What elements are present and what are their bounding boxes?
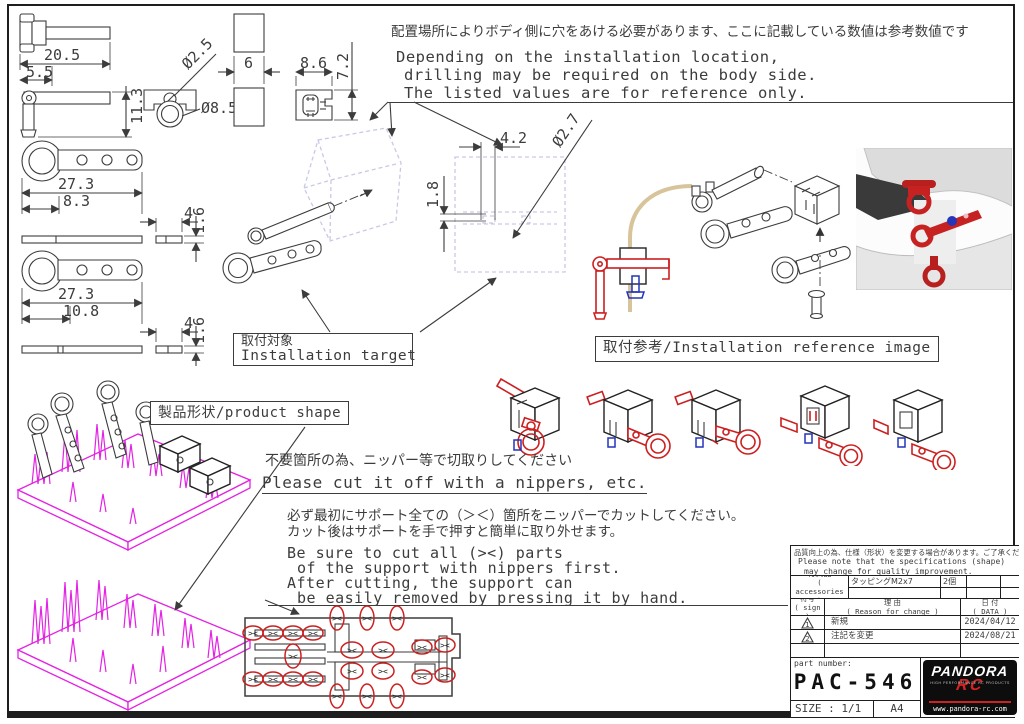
dim-dia-2-7: Ø2.7 [548, 110, 583, 150]
rev3-date [961, 644, 1019, 658]
dim-7-2: 7.2 [334, 53, 352, 80]
paper-size: A4 [874, 701, 921, 717]
cut-markers [243, 606, 455, 708]
svg-text:2: 2 [805, 635, 809, 643]
svg-text:><: >< [440, 671, 450, 680]
plate-a-end-view [156, 236, 182, 243]
col-date: 日 付 ( DATA ) [961, 599, 1019, 616]
rev1-sign: 1 [791, 616, 825, 630]
size-label: SIZE : 1/1 [791, 701, 874, 717]
col-reason-jp: 理 由 [884, 599, 901, 607]
product-shape-label: 製品形状/product shape [150, 401, 349, 425]
col-reason: 理 由 ( Reason for change ) [825, 599, 961, 616]
part-number-value: PAC-546 [791, 670, 920, 694]
installation-target-label-en: Installation target [241, 349, 405, 364]
rev2-sign: 2 [791, 630, 825, 644]
col-date-jp: 日 付 [982, 599, 999, 607]
reference-photo [856, 148, 1012, 290]
assembly-step-4 [775, 378, 870, 466]
tb-note-en-2: may change for quality improvement. [794, 567, 1016, 577]
svg-text:><: >< [417, 643, 427, 652]
svg-text:><: >< [268, 629, 278, 638]
top-note-jp: 配置場所によりボディ側に穴をあける必要があります、ここに記載している数値は参考数… [391, 20, 969, 40]
svg-text:><: >< [392, 692, 402, 701]
title-block: 品質向上の為、仕様（形状）を変更する場合があります。ご了承ください。 Pleas… [790, 545, 1019, 717]
col-date-en: ( DATA ) [972, 607, 1007, 616]
svg-text:><: >< [440, 641, 450, 650]
pandora-rc-logo: PANDORA RC HIGH PERFORMANCE RC PRODUCTS … [923, 660, 1017, 715]
dim-1-8: 1.8 [424, 181, 442, 208]
dim-8-3: 8.3 [63, 192, 90, 210]
dim-6: 6 [244, 54, 253, 72]
svg-text:><: >< [332, 614, 342, 623]
logo-red-line [929, 701, 1011, 703]
svg-text:><: >< [392, 614, 402, 623]
dim-5-5: 5.5 [26, 63, 53, 81]
installation-reference-label-text: 取付参考/Installation reference image [603, 341, 931, 356]
rev1-date: 2024/04/12 [961, 616, 1019, 630]
accessories-label-en: ( accessories ) [791, 578, 848, 599]
product-shape-label-text: 製品形状/product shape [158, 406, 341, 421]
revision-triangle-1: 1 [801, 617, 814, 629]
cut-note-en: Please cut it off with a nippers, etc. [262, 473, 647, 494]
installation-reference-label: 取付参考/Installation reference image [595, 336, 939, 362]
exploded-reference-parts [692, 165, 850, 319]
assembly-step-5 [868, 382, 963, 470]
plate-a-side-view [22, 236, 142, 243]
top-note-en-2: drilling may be required on the body sid… [404, 66, 817, 84]
dim-27-3-a: 27.3 [58, 175, 94, 193]
print-raft-empty [18, 580, 250, 710]
plate-b-end-view [156, 346, 182, 353]
rev3-reason [825, 644, 961, 658]
svg-text:><: >< [308, 629, 318, 638]
dim-11-3: 11.3 [128, 88, 146, 124]
col-sign: 符号 ( sign ) [791, 599, 825, 616]
part-number-label: part number: [791, 658, 920, 668]
svg-text:><: >< [347, 667, 357, 676]
assembly-step-2 [580, 380, 675, 468]
installation-target-label: 取付対象 Installation target [233, 333, 413, 366]
svg-text:><: >< [288, 629, 298, 638]
cut-note-jp: 不要箇所の為、ニッパー等で切取りしてください [265, 450, 572, 470]
shackle-front-view [144, 90, 196, 127]
dim-10-8: 10.8 [63, 302, 99, 320]
installation-reference-illustration [580, 128, 858, 333]
rev3-sign [791, 644, 825, 658]
svg-text:><: >< [362, 614, 372, 623]
svg-text:><: >< [288, 652, 298, 661]
svg-text:><: >< [417, 673, 427, 682]
accessory-row2-extra2 [1001, 588, 1019, 599]
rev2-date: 2024/08/21 [961, 630, 1019, 644]
accessory-qty: 2個 [941, 576, 967, 588]
accessory-extra-1 [967, 576, 1001, 588]
installation-target-label-jp: 取付対象 [241, 335, 405, 349]
tb-note-en-1: Please note that the specifications (sha… [794, 557, 1016, 567]
assembly-step-3 [668, 380, 763, 468]
accessories-header: 付属品 ( accessories ) [791, 576, 849, 599]
block-top-view [234, 14, 264, 52]
logo-url: www.pandora-rc.com [923, 705, 1017, 713]
accessory-row2-extra1 [967, 588, 1001, 599]
svg-text:><: >< [378, 667, 388, 676]
accessory-extra-2 [1001, 576, 1019, 588]
svg-text:><: >< [362, 692, 372, 701]
accessory-name: タッピングM2x7 [849, 576, 941, 588]
drawing-sheet: 配置場所によりボディ側に穴をあける必要があります、ここに記載している数値は参考数… [0, 0, 1024, 724]
dim-4-2: 4.2 [500, 129, 527, 147]
svg-text:><: >< [378, 646, 388, 655]
sprue-cut-points-drawing: ><><>< ><><>< ><><><>< ><><><>< >< ><>< … [237, 598, 472, 720]
title-block-note: 品質向上の為、仕様（形状）を変更する場合があります。ご了承ください。 Pleas… [791, 546, 1019, 576]
cut-detail-jp-2: カット後はサポートを手で押すと簡単に取り外せます。 [287, 520, 623, 540]
top-note-en-1: Depending on the installation location, [396, 48, 779, 66]
ghost-body-panel-3d [304, 128, 401, 241]
svg-text:><: >< [347, 646, 357, 655]
dim-27-3-b: 27.3 [58, 285, 94, 303]
dim-20-5: 20.5 [44, 46, 80, 64]
rev2-reason: 注記を変更 [825, 630, 961, 644]
tb-note-jp: 品質向上の為、仕様（形状）を変更する場合があります。ご了承ください。 [794, 548, 1016, 557]
svg-text:><: >< [288, 675, 298, 684]
exploded-pin-plate [223, 190, 372, 283]
plate-b-side-view [22, 346, 142, 353]
accessory-row2-name [849, 588, 941, 599]
pin-side-view [21, 91, 110, 137]
svg-text:><: >< [248, 629, 258, 638]
svg-text:><: >< [268, 675, 278, 684]
rev1-reason: 新規 [825, 616, 961, 630]
svg-text:><: >< [332, 692, 342, 701]
dim-8-6: 8.6 [300, 54, 327, 72]
col-reason-en: ( Reason for change ) [846, 607, 938, 616]
svg-text:1: 1 [805, 621, 809, 629]
svg-text:><: >< [308, 675, 318, 684]
installation-target-drawing: 4.2 1.8 Ø2.7 [200, 100, 620, 370]
ghost-body-panel-flat [455, 157, 565, 272]
col-sign-en: ( sign ) [791, 603, 824, 617]
logo-tagline: HIGH PERFORMANCE RC PRODUCTS [923, 680, 1017, 685]
revision-triangle-2: 2 [801, 631, 814, 643]
accessory-row2-qty [941, 588, 967, 599]
dim-dia-2-5: Ø2.5 [178, 35, 216, 73]
part-number-cell: part number: PAC-546 [791, 658, 921, 701]
mount-block [795, 176, 839, 224]
svg-text:><: >< [248, 675, 258, 684]
